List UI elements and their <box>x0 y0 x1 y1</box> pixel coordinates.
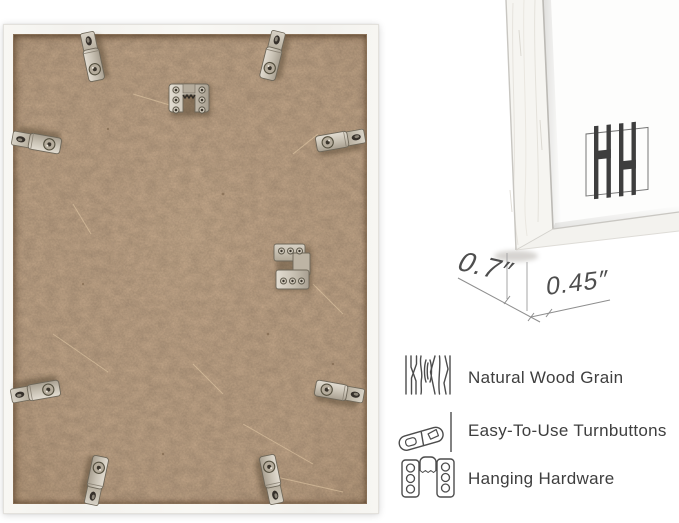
turnbutton-top-right <box>259 30 291 83</box>
hardware-layer <box>4 25 378 513</box>
hanging-bracket <box>274 244 312 291</box>
sawtooth-hanger <box>169 84 211 117</box>
turnbutton-bottom-left <box>78 454 109 506</box>
feature-label-hanging-hardware: Hanging Hardware <box>468 469 615 489</box>
turnbutton-left-lower <box>9 375 61 404</box>
turnbutton-top-left <box>79 30 110 82</box>
wood-grain-icon <box>404 355 452 395</box>
turnbutton-icon <box>397 410 455 454</box>
frame-back-photo <box>3 24 379 514</box>
turnbutton-right-lower <box>313 380 365 409</box>
feature-label-turnbuttons: Easy-To-Use Turnbuttons <box>468 421 667 441</box>
turnbutton-left-upper <box>11 125 63 154</box>
feature-label-wood-grain: Natural Wood Grain <box>468 368 623 388</box>
mat-face <box>543 0 679 229</box>
turnbutton-right-upper <box>315 128 367 157</box>
hanging-hardware-icon <box>401 456 455 501</box>
turnbutton-bottom-right <box>254 454 285 506</box>
